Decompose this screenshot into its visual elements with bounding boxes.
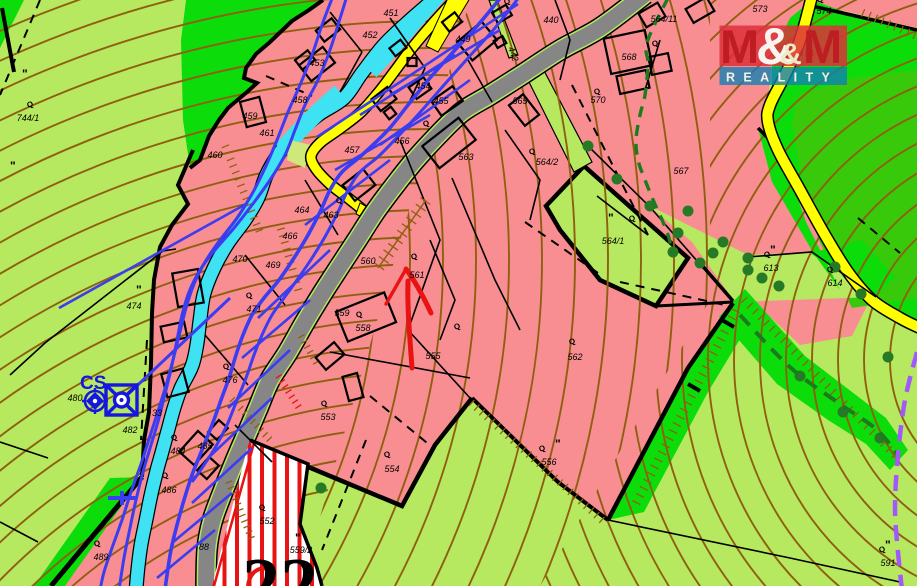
svg-text:460: 460: [207, 150, 222, 160]
svg-text:489: 489: [93, 552, 108, 562]
svg-text:470: 470: [232, 254, 247, 264]
svg-text:33: 33: [152, 408, 162, 418]
svg-text:564/11: 564/11: [651, 14, 678, 24]
svg-text:457: 457: [344, 145, 360, 155]
svg-text:458: 458: [292, 95, 307, 105]
svg-text:455: 455: [433, 96, 449, 106]
svg-text:": ": [555, 437, 561, 451]
svg-text:554: 554: [384, 464, 399, 474]
svg-text:564/2: 564/2: [536, 157, 559, 167]
svg-text:563: 563: [458, 152, 473, 162]
svg-text:574: 574: [816, 6, 831, 16]
svg-text:440: 440: [543, 15, 558, 25]
svg-text:474: 474: [126, 301, 141, 311]
svg-text:459: 459: [242, 111, 257, 121]
svg-text:": ": [10, 159, 16, 173]
svg-text:453: 453: [309, 58, 324, 68]
svg-text:564/1: 564/1: [602, 236, 625, 246]
svg-text:": ": [608, 211, 614, 225]
svg-text:454: 454: [415, 81, 430, 91]
svg-text:476: 476: [222, 375, 237, 385]
svg-text:486: 486: [161, 485, 176, 495]
svg-text:553: 553: [320, 412, 335, 422]
svg-text:469: 469: [265, 260, 280, 270]
svg-text:461: 461: [259, 128, 274, 138]
svg-text:573: 573: [752, 4, 767, 14]
svg-text:552: 552: [259, 516, 274, 526]
svg-text:449: 449: [455, 34, 470, 44]
svg-text:M: M: [803, 20, 842, 73]
svg-text:M: M: [720, 20, 759, 73]
svg-text:559/2: 559/2: [290, 545, 313, 555]
svg-text:570: 570: [590, 95, 605, 105]
svg-text:568: 568: [621, 52, 636, 62]
svg-text:": ": [295, 531, 301, 545]
svg-text:466: 466: [282, 231, 297, 241]
svg-text:": ": [770, 243, 776, 257]
svg-text:": ": [885, 538, 891, 552]
svg-text:463: 463: [323, 210, 338, 220]
svg-text:556: 556: [541, 457, 556, 467]
svg-text:": ": [136, 283, 142, 297]
svg-text:471: 471: [246, 304, 261, 314]
svg-text:480: 480: [67, 393, 82, 403]
svg-text:558: 558: [355, 323, 370, 333]
svg-text:482: 482: [122, 425, 137, 435]
svg-text:567: 567: [673, 166, 689, 176]
svg-text:614: 614: [827, 278, 842, 288]
svg-text:&: &: [780, 38, 802, 71]
svg-text:561: 561: [409, 270, 424, 280]
svg-text:464: 464: [294, 205, 309, 215]
svg-text:565: 565: [512, 96, 528, 106]
svg-text:555: 555: [425, 351, 441, 361]
svg-text:452: 452: [362, 30, 377, 40]
svg-text:451: 451: [383, 8, 398, 18]
svg-text:": ": [22, 67, 28, 81]
svg-text:613: 613: [763, 263, 778, 273]
svg-text:560: 560: [360, 256, 375, 266]
svg-text:456: 456: [394, 136, 409, 146]
svg-text:485: 485: [197, 441, 213, 451]
svg-text:744/1: 744/1: [17, 113, 40, 123]
svg-text:562: 562: [567, 352, 582, 362]
svg-text:559: 559: [334, 308, 349, 318]
svg-text:484: 484: [170, 446, 185, 456]
svg-text:88: 88: [199, 542, 209, 552]
svg-text:REALITY: REALITY: [726, 71, 838, 85]
svg-text:591: 591: [880, 558, 895, 568]
